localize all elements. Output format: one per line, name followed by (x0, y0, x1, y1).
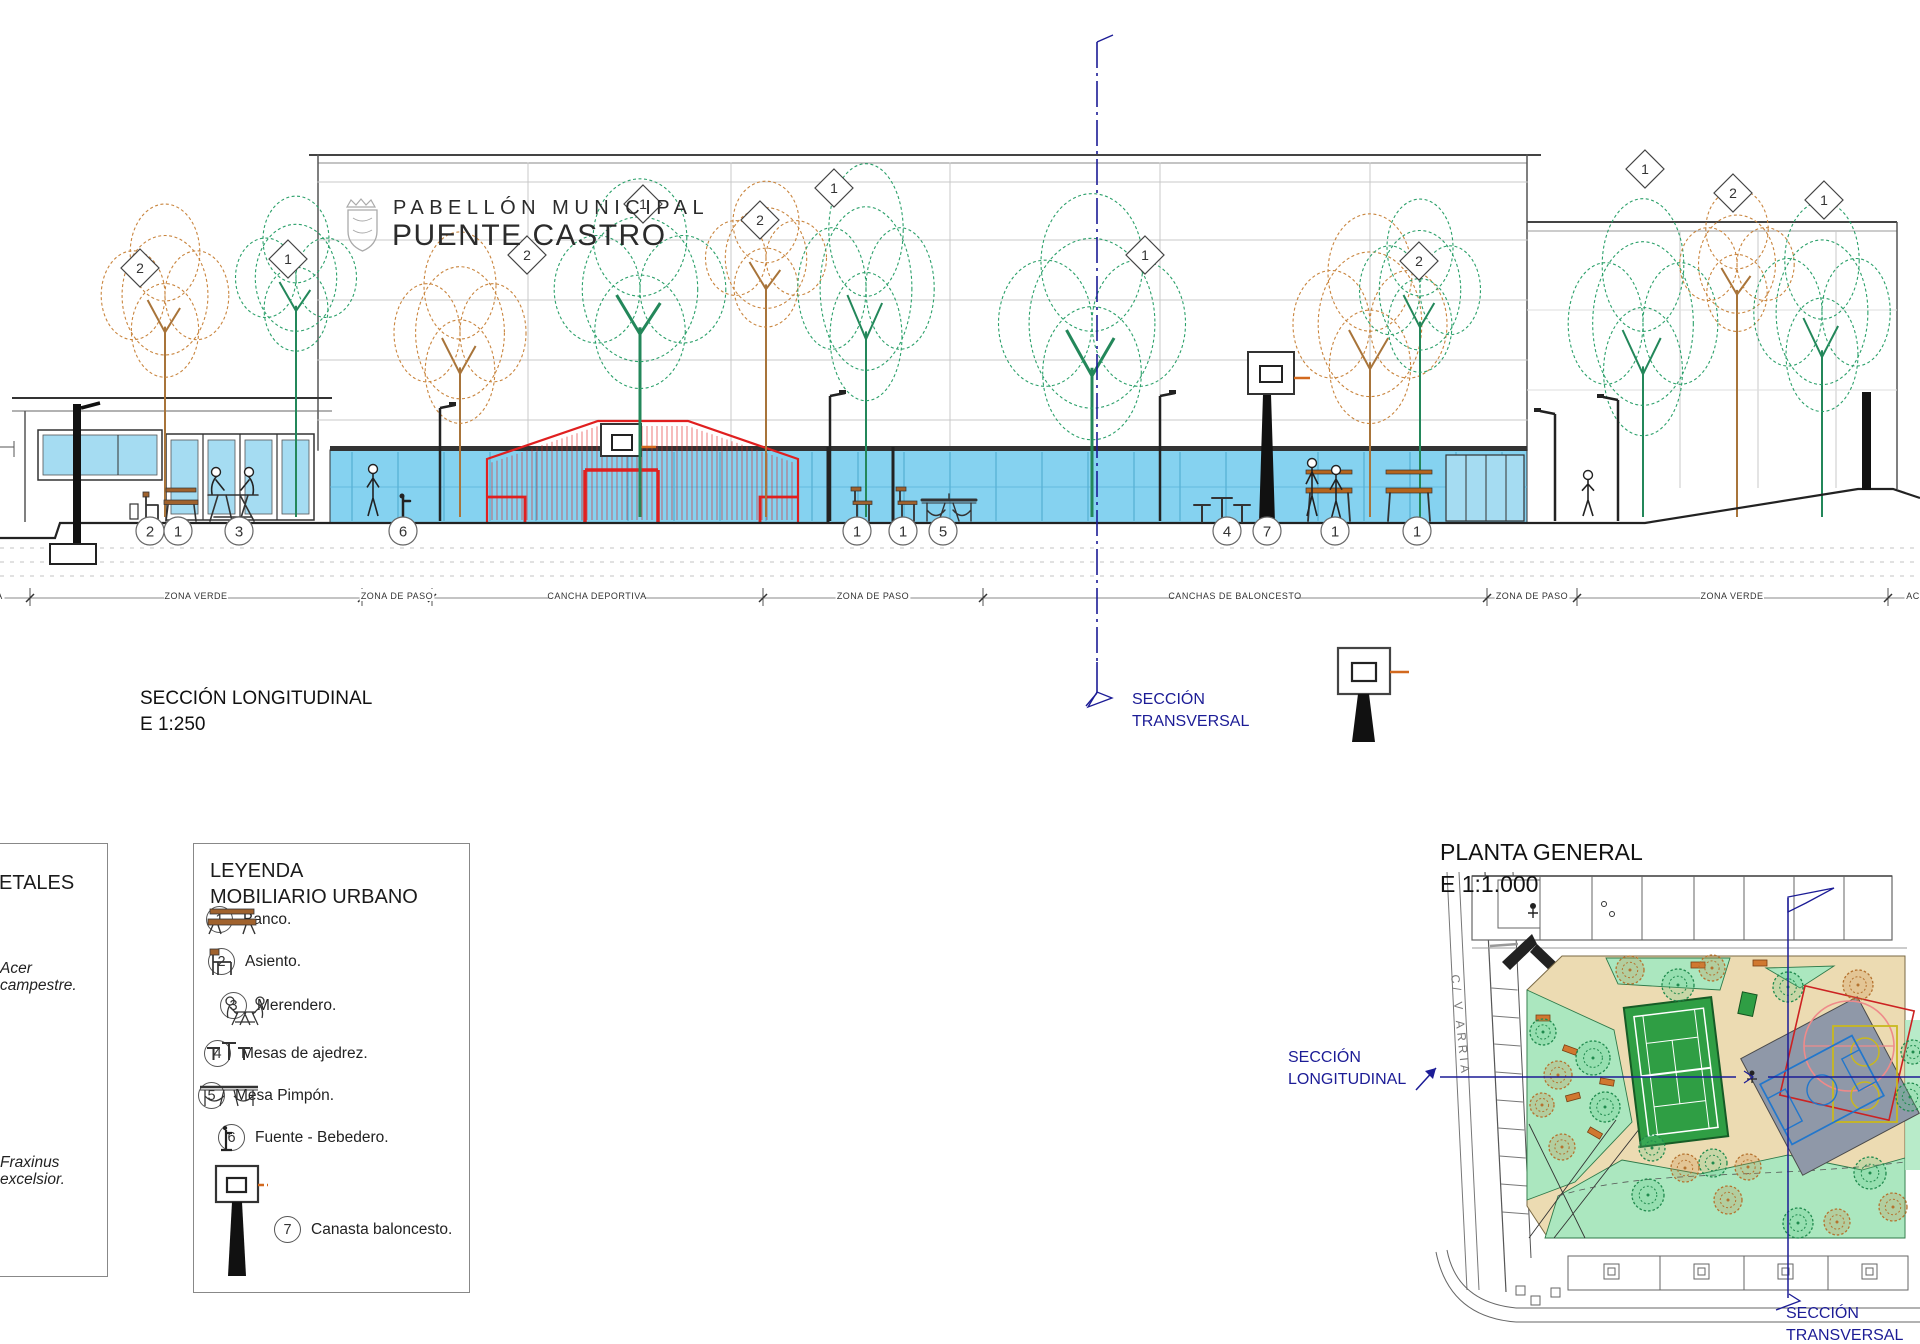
basketball-hoop-icon (212, 1162, 268, 1280)
legend-item-label: Fuente - Bebedero. (255, 1129, 389, 1147)
circle (1542, 1031, 1545, 1034)
adjacent-building (1527, 222, 1897, 489)
furniture-marker-number: 5 (939, 524, 947, 541)
glass-doors-right (1446, 455, 1524, 521)
plan-tree (1530, 1093, 1554, 1117)
species-entry: Acer campestre. (0, 960, 112, 994)
circle (1747, 1166, 1750, 1169)
architectural-sheet: ACERAZONA VERDEZONA DE PASOCANCHA DEPORT… (0, 0, 1920, 1344)
line (1603, 397, 1618, 400)
parking-slot (1494, 1044, 1520, 1046)
parking-slot (1501, 1184, 1527, 1186)
crosswalk-stripe (1490, 944, 1518, 946)
legend-title-line1: LEYENDA (210, 858, 418, 884)
section-scale: E 1:250 (140, 714, 206, 735)
plan-tree (1735, 1154, 1761, 1180)
fountain-icon (218, 1124, 238, 1154)
plan-tree (1714, 1186, 1742, 1214)
furniture-marker-number: 1 (174, 524, 182, 541)
lamp-head (449, 402, 456, 406)
legend-furniture-box: LEYENDA MOBILIARIO URBANO 1 Banco. 2 Asi… (193, 843, 470, 1293)
species-entry: Fraxinus excelsior. (0, 1154, 112, 1188)
plan-longitudinal-label-line1: SECCIÓN (1288, 1047, 1361, 1066)
lamp-head (1169, 390, 1176, 394)
parking-slot (1497, 1100, 1523, 1102)
tree-tag-number: 2 (136, 260, 144, 276)
tree-canopy (165, 251, 229, 340)
city-coat-of-arms (347, 199, 377, 251)
circle (1896, 1083, 1920, 1111)
plan-tree (1699, 1149, 1727, 1177)
lamp-head (1597, 394, 1604, 398)
plan-tree (1544, 1061, 1572, 1089)
bench-icon (206, 906, 260, 936)
basketball-hoop-symbol (1338, 648, 1409, 742)
tree-tag-number: 1 (1641, 161, 1649, 177)
person-body (1582, 479, 1594, 516)
legend-item-label: Mesas de ajedrez. (241, 1045, 368, 1063)
plan-transversal-label-line2: TRANSVERSAL (1786, 1327, 1903, 1344)
parking-slot (1492, 988, 1518, 990)
parking-slot (1496, 1072, 1522, 1074)
tree-tag-number: 2 (756, 212, 764, 228)
picnic-table-icon (220, 992, 270, 1028)
transversal-label-line1: SECCIÓN (1132, 689, 1205, 708)
circle (1684, 1167, 1687, 1170)
circle (1901, 1040, 1920, 1064)
plan-tree (1824, 1209, 1850, 1235)
transversal-label-line2: TRANSVERSAL (1132, 713, 1249, 730)
plan-longitudinal-label-line2: LONGITUDINAL (1288, 1071, 1406, 1088)
plan-structures-bottom (1568, 1256, 1908, 1290)
lamp-head (839, 390, 846, 394)
zone-label: CANCHAS DE BALONCESTO (1168, 591, 1301, 601)
chess-tables-icon (204, 1040, 252, 1062)
tree-tag-number: 2 (1415, 253, 1423, 269)
circle (1711, 967, 1714, 970)
lamp-post (1534, 408, 1555, 521)
section-tree (1680, 189, 1794, 517)
tree-canopy (296, 238, 357, 317)
circle (1592, 1057, 1595, 1060)
circle (1647, 1194, 1650, 1197)
furniture-marker-number: 1 (899, 524, 907, 541)
furniture-marker-number: 1 (1331, 524, 1339, 541)
plan-tree (1576, 1041, 1610, 1075)
legend-item-asiento: 2 Asiento. (208, 948, 301, 975)
tree-canopy (460, 284, 526, 382)
plan-tree (1662, 969, 1694, 1001)
legend-item-canasta-label: 7 Canasta baloncesto. (274, 1216, 452, 1243)
furniture-marker-number: 7 (1263, 524, 1271, 541)
cage-backboard (601, 424, 641, 456)
parking-slot (1493, 1016, 1519, 1018)
zone-label: ZONA VERDE (164, 591, 227, 601)
line (1540, 411, 1555, 414)
chair-icon (208, 948, 236, 978)
plan-tree (1671, 1154, 1699, 1182)
zone-label: ZONA DE PASO (361, 591, 433, 601)
circle (1604, 1106, 1607, 1109)
plan-tree (1616, 956, 1644, 984)
circle (1629, 969, 1632, 972)
furniture-marker-number: 1 (853, 524, 861, 541)
furniture-marker-number: 1 (1413, 524, 1421, 541)
furniture-marker-number: 2 (146, 524, 154, 541)
tree-tag-number: 2 (1729, 185, 1737, 201)
plan-tree (1632, 1179, 1664, 1211)
lamp-post (1597, 394, 1618, 521)
tree-canopy (1754, 258, 1822, 366)
circle (1892, 1206, 1895, 1209)
tree-canopy (1737, 228, 1794, 301)
zone-label: ACERA (1906, 591, 1920, 601)
legend-species-box: ETALES Acer campestre. Fraxinus excelsio… (0, 843, 108, 1277)
tree-canopy (1370, 270, 1447, 378)
plan-tree (1879, 1193, 1907, 1221)
tree-canopy (798, 228, 866, 350)
parking-slot (1500, 1156, 1526, 1158)
tree-tag-number: 1 (1141, 247, 1149, 263)
legend-item-merendero: 3 Merendero. (220, 992, 336, 1019)
tree-canopy (1092, 260, 1186, 386)
person-head (369, 465, 378, 474)
tree-canopy (999, 260, 1093, 386)
circle (1857, 984, 1860, 987)
tree-canopy (1293, 270, 1370, 378)
circle (1561, 1146, 1564, 1149)
section-tree (1568, 199, 1718, 517)
furniture-marker-number: 3 (235, 524, 243, 541)
plan-tree (1699, 955, 1725, 981)
plan-scale: E 1:1.000 (1440, 871, 1538, 897)
legend-item-ajedrez: 4 Mesas de ajedrez. (204, 1040, 368, 1067)
legend-furniture-title: LEYENDA MOBILIARIO URBANO (210, 858, 418, 910)
legend-item-label: Asiento. (245, 953, 301, 971)
circle (1677, 984, 1680, 987)
general-plan: PLANTA GENERAL E 1:1.000 C/ V ARRIA SECC… (1288, 839, 1920, 1344)
plan-tree (1901, 1040, 1920, 1064)
person-head (1308, 459, 1317, 468)
tennis-court (1624, 997, 1728, 1147)
circle (1909, 1096, 1912, 1099)
zone-label: ZONA VERDE (1700, 591, 1763, 601)
parking-slot (1502, 1212, 1528, 1214)
tree-canopy (766, 221, 827, 296)
plan-tree (1530, 1019, 1556, 1045)
circle (1541, 1104, 1544, 1107)
circle (1836, 1221, 1839, 1224)
building-title-line2: PUENTE CASTRO (392, 219, 667, 252)
legend-species-title: ETALES (0, 872, 74, 895)
plan-tree (1843, 970, 1873, 1000)
plan-tree (1590, 1092, 1620, 1122)
legend-item-number: 7 (274, 1216, 301, 1243)
zone-label: ZONA DE PASO (1496, 591, 1568, 601)
plan-tree (1896, 1083, 1920, 1111)
legend-item-fuente: 6 Fuente - Bebedero. (218, 1124, 389, 1151)
furniture-marker-number: 4 (1223, 524, 1231, 541)
circle (1727, 1199, 1730, 1202)
section-title: SECCIÓN LONGITUDINAL (140, 687, 372, 709)
person-head (1332, 466, 1341, 475)
plan-tree (1549, 1134, 1575, 1160)
tree-tag-number: 1 (1820, 192, 1828, 208)
circle (1912, 1051, 1915, 1054)
longitudinal-section: ACERAZONA VERDEZONA DE PASOCANCHA DEPORT… (0, 35, 1920, 742)
circle (1869, 1172, 1872, 1175)
legend-item-banco: 1 Banco. (206, 906, 291, 933)
street-label: C/ V ARRIA (1448, 974, 1473, 1078)
zone-label: ACERA (0, 591, 3, 601)
plan-transversal-label-line1: SECCIÓN (1786, 1303, 1859, 1322)
plan-tree (1639, 1135, 1665, 1161)
zone-label: CANCHA DEPORTIVA (547, 591, 646, 601)
zone-label: ZONA DE PASO (837, 591, 909, 601)
circle (1557, 1074, 1560, 1077)
tree-trunk (1721, 268, 1750, 517)
lamp-head (1534, 408, 1541, 412)
legend-item-label: Canasta baloncesto. (311, 1221, 452, 1239)
tree-canopy (1568, 263, 1643, 385)
circle (1712, 1162, 1715, 1165)
plan-title: PLANTA GENERAL (1440, 839, 1643, 865)
tree-tag-number: 1 (830, 180, 838, 196)
plan-tree (1854, 1157, 1886, 1189)
parking-slot (1498, 1128, 1524, 1130)
tree-tag-number: 1 (284, 251, 292, 267)
tree-trunk (1803, 318, 1838, 517)
plan-bench (1753, 960, 1767, 966)
lamp-post-cut-right (1862, 392, 1871, 490)
pingpong-table-icon (198, 1082, 260, 1108)
tree-canopy (1822, 258, 1890, 366)
person-figure (1582, 471, 1594, 517)
circle (1651, 1147, 1654, 1150)
legend-item-pimpon: 5 Mesa Pimpón. (198, 1082, 334, 1109)
person-head (1584, 471, 1593, 480)
tree-canopy (866, 228, 934, 350)
street-lamp-cut (50, 403, 100, 564)
circle (1797, 1222, 1800, 1225)
tree-canopy (394, 284, 460, 382)
building-title-line1: PABELLÓN MUNICIPAL (393, 196, 709, 219)
furniture-marker-number: 6 (399, 524, 407, 541)
tree-trunk (1623, 330, 1661, 517)
